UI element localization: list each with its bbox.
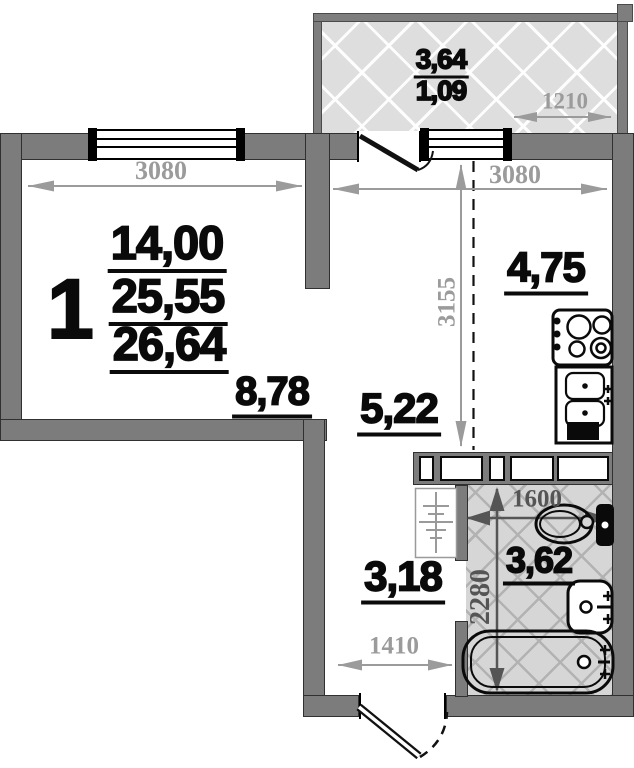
living-area-total: 26,64	[110, 320, 229, 374]
balcony-area-counted: 1,09	[416, 77, 467, 105]
vent-shaft-box	[557, 456, 609, 481]
window-pane-line	[88, 146, 245, 148]
unit-number: 1	[47, 267, 93, 351]
wardrobe-icon	[416, 489, 457, 558]
balcony-wall-right	[617, 13, 628, 143]
living-area-main: 14,00	[108, 219, 227, 273]
wall-right	[612, 133, 634, 717]
wall-bathroom-left-lower	[455, 621, 468, 697]
entry-door-opening	[359, 693, 446, 719]
wall-living-bottom	[0, 419, 327, 441]
window-pane-line	[88, 138, 245, 140]
vent-shaft-box	[510, 456, 554, 481]
dim-kitchen-width: 3080	[489, 162, 541, 188]
vent-shaft-box	[489, 456, 505, 481]
floor-plan: 1 14,00 25,55 26,64 8,78 5,22 4,75 3,18 …	[0, 0, 634, 768]
kitchen-sink-icon	[556, 367, 612, 443]
dim-bathroom-width: 1600	[512, 487, 562, 512]
dim-arrow-kitchen-width	[333, 184, 607, 195]
window-pane-line	[420, 146, 512, 148]
balcony-wall-top	[313, 13, 628, 22]
wall-hall-left	[303, 419, 325, 717]
stove-icon	[553, 310, 612, 365]
window-jamb	[420, 128, 429, 161]
kitchen-area: 4,75	[504, 247, 588, 296]
balcony-door-opening	[357, 131, 421, 162]
entry-area: 3,18	[361, 556, 445, 605]
dim-entry-width: 1410	[369, 634, 419, 659]
window-pane-line	[420, 138, 512, 140]
balcony-wall-stub	[617, 4, 633, 22]
dim-kitchen-depth: 3155	[435, 277, 460, 327]
bathroom-area: 3,62	[503, 543, 575, 586]
vent-shaft-box	[440, 456, 483, 481]
wall-bathroom-left-upper	[455, 485, 468, 561]
living-area-secondary: 8,78	[232, 372, 312, 419]
wall-left	[0, 133, 22, 441]
dim-arrow-entry-width	[338, 660, 452, 671]
wall-bottom-right-segment	[446, 695, 634, 717]
window-jamb	[236, 128, 245, 161]
dim-bathroom-depth: 2280	[467, 569, 495, 625]
wall-bottom-left-segment	[303, 695, 359, 717]
dim-balcony-width: 1210	[542, 90, 588, 113]
balcony-floor	[318, 18, 621, 138]
window-jamb	[88, 128, 97, 161]
balcony-wall-left	[313, 13, 322, 143]
balcony-area-total: 3,64	[414, 46, 469, 79]
dim-living-width: 3080	[135, 158, 187, 184]
hall-area: 5,22	[357, 388, 441, 437]
wall-living-kitchen-divider	[305, 133, 330, 289]
kitchen-window	[420, 129, 512, 160]
vent-shaft-box	[419, 456, 434, 481]
window-jamb	[503, 128, 512, 161]
